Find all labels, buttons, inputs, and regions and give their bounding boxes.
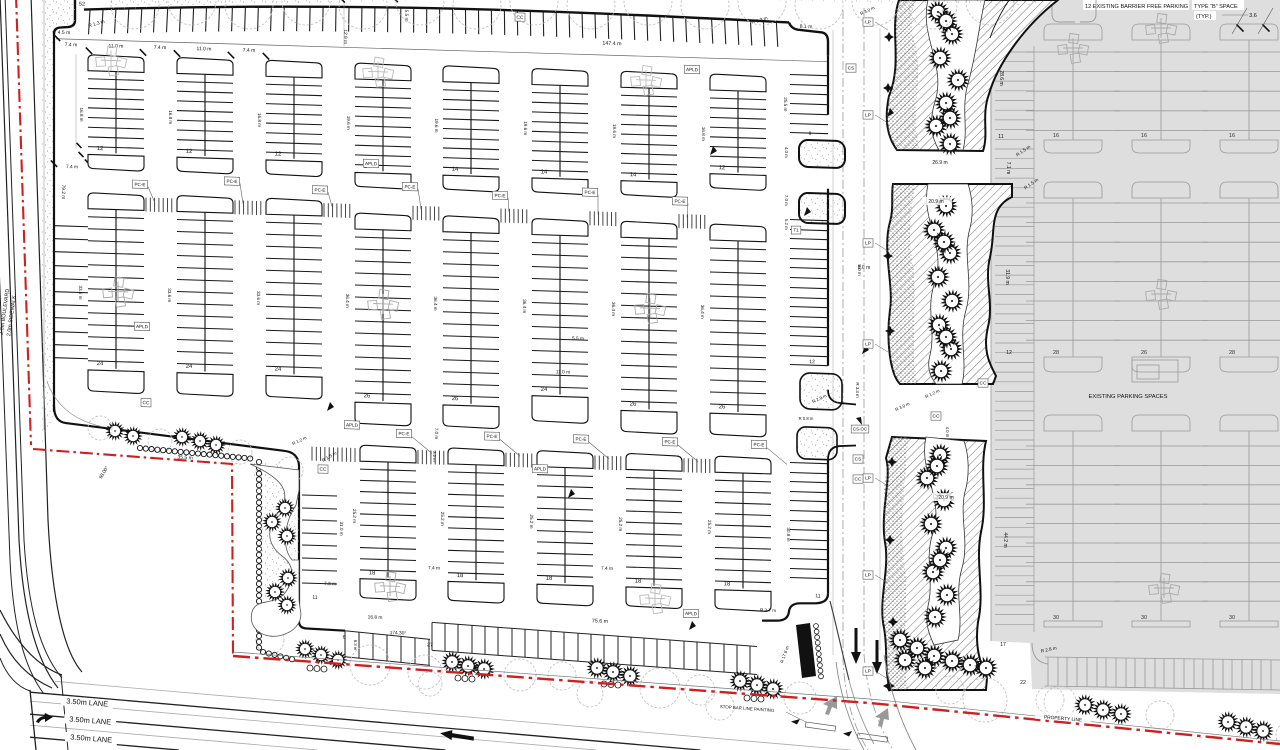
svg-text:7.4 m: 7.4 m	[65, 42, 78, 48]
svg-text:24: 24	[275, 367, 282, 373]
svg-text:16: 16	[1229, 133, 1235, 139]
svg-text:7.4 m: 7.4 m	[154, 45, 167, 51]
svg-text:APLD: APLD	[534, 466, 547, 471]
svg-text:75.6 m: 75.6 m	[592, 618, 609, 625]
svg-text:CS: CS	[848, 66, 855, 72]
svg-text:R 3.3 m: R 3.3 m	[855, 382, 860, 398]
svg-text:36.4 m: 36.4 m	[611, 302, 616, 316]
svg-text:7.1 m: 7.1 m	[1005, 162, 1011, 175]
svg-text:EXISTING PARKING SPACES: EXISTING PARKING SPACES	[1088, 394, 1167, 400]
svg-text:PC-E: PC-E	[399, 431, 410, 436]
svg-text:PC-E: PC-E	[665, 439, 676, 444]
svg-text:28: 28	[1229, 350, 1235, 356]
svg-text:16.8 m: 16.8 m	[257, 113, 262, 127]
svg-text:17: 17	[1000, 642, 1006, 648]
svg-text:CS: CS	[855, 457, 862, 463]
svg-text:25.2 m: 25.2 m	[352, 509, 357, 523]
svg-text:27: 27	[427, 642, 433, 648]
svg-text:22: 22	[1020, 680, 1026, 686]
svg-text:16.8 m: 16.8 m	[368, 614, 383, 620]
svg-text:18: 18	[635, 578, 641, 584]
svg-text:25.5 m: 25.5 m	[783, 97, 788, 111]
svg-text:6: 6	[343, 635, 346, 641]
svg-text:26: 26	[1141, 350, 1147, 356]
svg-text:4.0 m: 4.0 m	[784, 147, 789, 158]
svg-text:11.0 m: 11.0 m	[556, 369, 570, 375]
svg-text:LP: LP	[865, 241, 871, 247]
svg-text:PC-E: PC-E	[135, 182, 146, 187]
svg-text:12: 12	[719, 165, 725, 171]
svg-text:16.8 m: 16.8 m	[701, 127, 706, 141]
svg-text:PC-E: PC-E	[227, 179, 238, 184]
svg-text:APLD: APLD	[136, 324, 149, 329]
svg-text:TYPE “B” SPACE: TYPE “B” SPACE	[1194, 4, 1238, 10]
svg-text:12: 12	[97, 146, 103, 152]
svg-text:12: 12	[809, 359, 815, 365]
svg-text:CC: CC	[143, 400, 150, 406]
svg-text:LP: LP	[865, 476, 871, 482]
svg-text:LP: LP	[865, 113, 871, 119]
svg-text:11: 11	[815, 593, 820, 599]
svg-text:30: 30	[1229, 615, 1235, 621]
svg-text:PC-E: PC-E	[585, 190, 596, 195]
svg-text:APLD: APLD	[365, 161, 378, 166]
svg-text:18: 18	[369, 570, 375, 576]
svg-text:24: 24	[97, 361, 104, 367]
svg-text:33.6 m: 33.6 m	[167, 288, 172, 302]
svg-text:14: 14	[541, 169, 548, 175]
svg-text:APLD: APLD	[685, 611, 698, 616]
svg-text:APLD: APLD	[686, 67, 699, 72]
svg-text:PC-E: PC-E	[405, 184, 416, 189]
svg-text:12.9 m: 12.9 m	[342, 29, 348, 44]
svg-text:5.5 m: 5.5 m	[572, 336, 584, 342]
svg-text:30: 30	[1141, 615, 1147, 621]
svg-text:36.4 m: 36.4 m	[522, 299, 527, 313]
svg-text:20.9 m: 20.9 m	[938, 495, 953, 501]
svg-text:LP: LP	[865, 573, 871, 579]
svg-text:5.5 m: 5.5 m	[403, 9, 409, 21]
svg-text:19.6 m: 19.6 m	[523, 121, 528, 135]
svg-text:5.2 m: 5.2 m	[784, 219, 789, 230]
svg-text:3.6: 3.6	[1249, 13, 1257, 19]
svg-text:9.0 m: 9.0 m	[857, 264, 862, 276]
svg-text:36.4 m: 36.4 m	[433, 296, 438, 310]
svg-text:CS-OC: CS-OC	[853, 427, 867, 432]
svg-text:18: 18	[546, 576, 552, 582]
svg-text:16.8 m: 16.8 m	[79, 107, 84, 121]
svg-text:PC-E: PC-E	[495, 193, 506, 198]
svg-text:19.6 m: 19.6 m	[346, 116, 351, 130]
svg-text:26: 26	[364, 393, 370, 399]
svg-text:14: 14	[452, 167, 459, 173]
svg-text:7.4 m: 7.4 m	[243, 48, 256, 54]
svg-text:44.2 m: 44.2 m	[1002, 532, 1008, 547]
svg-text:14: 14	[630, 172, 637, 178]
svg-text:11: 11	[998, 134, 1003, 140]
svg-text:R 2.7 m: R 2.7 m	[760, 608, 776, 614]
svg-text:33.6 m: 33.6 m	[256, 291, 261, 305]
svg-text:28.6 m: 28.6 m	[998, 70, 1004, 85]
svg-text:174.30°: 174.30°	[390, 630, 407, 637]
svg-text:T1: T1	[793, 228, 799, 233]
svg-text:30: 30	[1053, 615, 1059, 621]
svg-text:7.4 m: 7.4 m	[428, 565, 440, 571]
svg-text:26.9 m: 26.9 m	[932, 160, 947, 166]
svg-text:(TYP.): (TYP.)	[1196, 14, 1212, 20]
svg-text:16: 16	[1053, 133, 1059, 139]
svg-text:31.0 m: 31.0 m	[339, 521, 344, 535]
svg-text:PC-E: PC-E	[576, 437, 587, 442]
svg-text:26: 26	[630, 402, 636, 408]
svg-text:7.4 m: 7.4 m	[601, 566, 613, 572]
svg-text:31.9 m: 31.9 m	[1004, 269, 1010, 284]
svg-text:APLD: APLD	[346, 422, 359, 427]
svg-text:LP: LP	[865, 342, 871, 348]
svg-text:7.0 m: 7.0 m	[434, 428, 439, 440]
svg-text:52: 52	[79, 1, 85, 7]
svg-text:7.0 m: 7.0 m	[784, 195, 789, 206]
svg-text:18: 18	[724, 581, 730, 587]
svg-text:PC-E: PC-E	[487, 434, 498, 439]
svg-text:7.4 m: 7.4 m	[66, 164, 78, 170]
svg-text:28: 28	[1053, 350, 1059, 356]
svg-text:PC-E: PC-E	[315, 187, 326, 192]
svg-text:26: 26	[719, 404, 725, 410]
svg-text:36.4 m: 36.4 m	[345, 294, 350, 308]
svg-text:12 EXISTING BARRIER FREE PARKI: 12 EXISTING BARRIER FREE PARKING	[1085, 4, 1188, 10]
svg-text:16.8 m: 16.8 m	[168, 110, 173, 124]
svg-text:25.2 m: 25.2 m	[529, 514, 534, 528]
svg-text:PC-E: PC-E	[754, 442, 765, 447]
svg-text:CC: CC	[320, 467, 327, 473]
svg-text:4.5 m: 4.5 m	[58, 30, 71, 36]
svg-text:147.4 m: 147.4 m	[602, 41, 622, 48]
svg-text:25.2 m: 25.2 m	[707, 520, 712, 534]
svg-text:12: 12	[1006, 350, 1012, 356]
svg-text:PC-E: PC-E	[675, 199, 686, 204]
svg-text:26: 26	[452, 396, 458, 402]
svg-text:18: 18	[457, 573, 463, 579]
svg-text:LP: LP	[865, 669, 871, 675]
svg-text:24: 24	[186, 364, 193, 370]
svg-text:19.6 m: 19.6 m	[612, 124, 617, 138]
svg-text:9: 9	[809, 131, 812, 137]
svg-text:CC: CC	[980, 381, 987, 387]
svg-text:R 0.8 m: R 0.8 m	[799, 416, 814, 421]
svg-text:CC: CC	[517, 15, 524, 21]
svg-text:CC: CC	[933, 414, 940, 420]
svg-text:11: 11	[312, 595, 317, 601]
svg-text:79.2 m: 79.2 m	[60, 185, 66, 200]
svg-text:16: 16	[1141, 133, 1147, 139]
svg-text:33.6 m: 33.6 m	[78, 285, 83, 299]
svg-text:36.4 m: 36.4 m	[700, 305, 705, 319]
svg-text:12: 12	[186, 149, 192, 155]
svg-text:24: 24	[541, 387, 548, 393]
svg-text:12: 12	[275, 151, 281, 157]
svg-text:25.2 m: 25.2 m	[440, 512, 445, 526]
svg-text:CC: CC	[855, 477, 862, 483]
svg-text:8.3 m: 8.3 m	[353, 640, 358, 651]
svg-text:19.6 m: 19.6 m	[434, 118, 439, 132]
svg-text:4.0 m: 4.0 m	[945, 427, 950, 438]
svg-text:11.0 m: 11.0 m	[197, 46, 212, 52]
svg-text:25.2 m: 25.2 m	[618, 517, 623, 531]
svg-text:3.2 m: 3.2 m	[432, 451, 437, 462]
svg-text:8.1 m: 8.1 m	[800, 24, 813, 30]
svg-text:20.9 m: 20.9 m	[928, 199, 943, 205]
